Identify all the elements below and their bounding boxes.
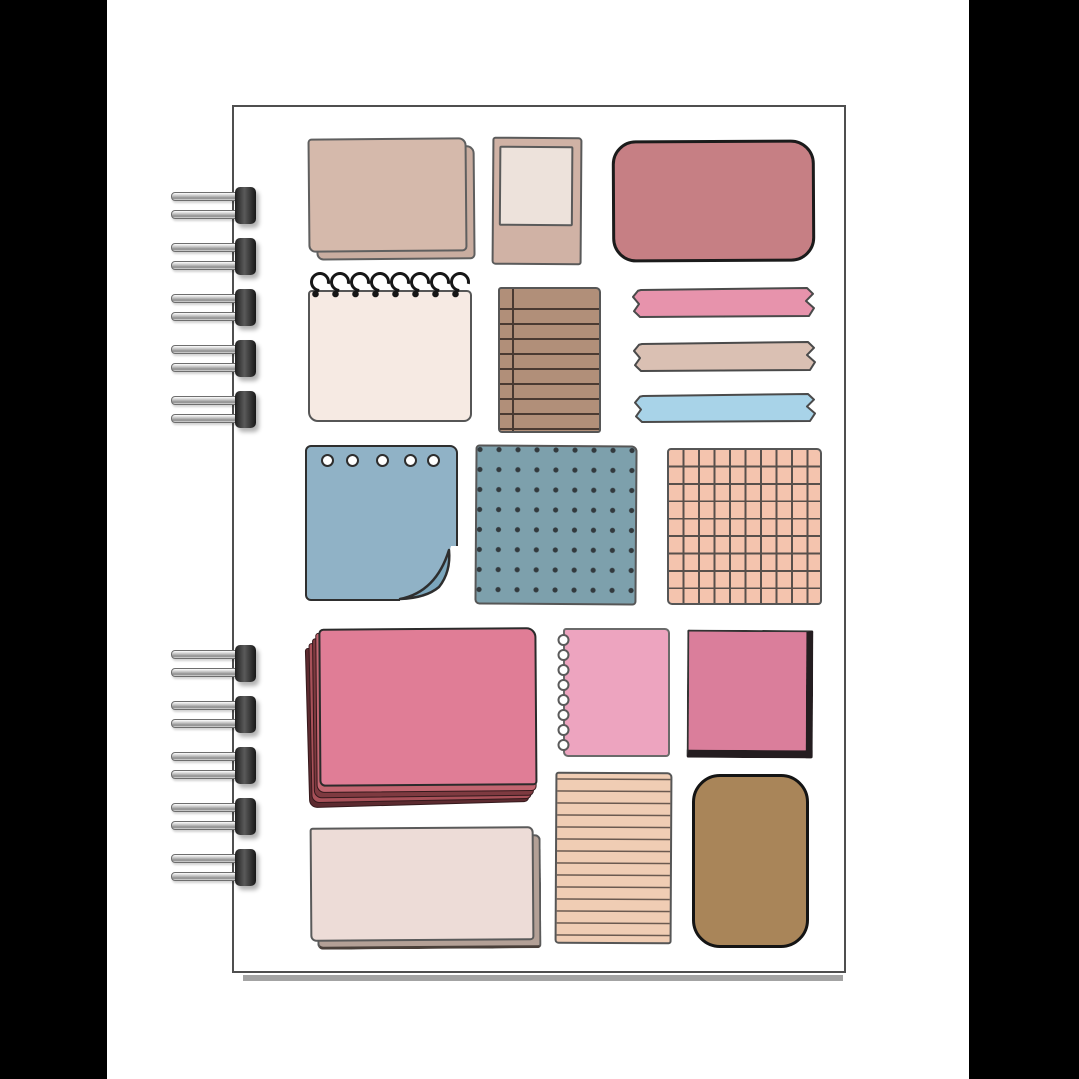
- coil-wire: [171, 668, 245, 677]
- spiral-notepad-paper: [308, 290, 472, 422]
- cover-drop-shadow: [243, 975, 843, 981]
- pink-stitched-note-paper: [687, 630, 814, 759]
- washi-tape-pink-strip: [630, 287, 817, 318]
- peach-grid-note-paper: [667, 448, 822, 605]
- binding-coil: [171, 849, 259, 886]
- binding-coil: [171, 187, 259, 224]
- cream-wide-note: [310, 826, 535, 942]
- brown-rounded-card-face: [692, 774, 809, 948]
- left-black-bar: [0, 0, 107, 1079]
- coil-wire: [171, 650, 245, 659]
- tan-stacked-note: [308, 137, 468, 252]
- binding-coil: [171, 391, 259, 428]
- binding-coil: [171, 289, 259, 326]
- blue-punched-note-punch-hole: [346, 454, 359, 467]
- washi-tape-blue-strip: [632, 393, 818, 423]
- coil-wire: [171, 312, 245, 321]
- brown-lined-note-paper: [498, 287, 601, 433]
- peach-lined-note-paper: [555, 772, 673, 945]
- peach-grid-note: [667, 448, 822, 605]
- pink-paper-stack: [306, 627, 539, 810]
- coil-cap: [235, 187, 256, 224]
- pink-torn-note-torn-rings: [553, 628, 575, 757]
- coil-wire: [171, 701, 245, 710]
- binding-coil: [171, 238, 259, 275]
- blue-dotted-note-paper: [474, 444, 637, 605]
- coil-cap: [235, 289, 256, 326]
- polaroid-frame: [492, 137, 583, 266]
- coil-cap: [235, 849, 256, 886]
- coil-wire: [171, 396, 245, 405]
- coil-wire: [171, 363, 245, 372]
- coil-cap: [235, 238, 256, 275]
- blue-punched-note-punch-hole: [404, 454, 417, 467]
- coil-wire: [171, 803, 245, 812]
- binding-coil: [171, 340, 259, 377]
- blue-dotted-note: [474, 444, 637, 605]
- rose-rounded-card: [612, 139, 816, 262]
- coil-wire: [171, 719, 245, 728]
- coil-cap: [235, 340, 256, 377]
- coil-cap: [235, 696, 256, 733]
- tan-stacked-note-front-sheet: [308, 137, 468, 252]
- washi-tape-beige-strip: [631, 341, 818, 372]
- right-black-bar: [969, 0, 1079, 1079]
- coil-wire: [171, 414, 245, 423]
- pink-torn-note: [553, 628, 670, 757]
- coil-wire: [171, 854, 245, 863]
- coil-wire: [171, 821, 245, 830]
- pink-paper-stack-top-sheet: [318, 627, 537, 787]
- coil-cap: [235, 747, 256, 784]
- coil-cap: [235, 798, 256, 835]
- coil-wire: [171, 872, 245, 881]
- coil-wire: [171, 243, 245, 252]
- polaroid-frame-photo: [499, 146, 574, 227]
- binding-coil: [171, 747, 259, 784]
- coil-cap: [235, 391, 256, 428]
- peach-lined-note: [555, 772, 673, 945]
- blue-punched-note-punch-hole: [321, 454, 334, 467]
- rose-rounded-card-face: [612, 139, 816, 262]
- pink-stitched-note: [687, 630, 814, 759]
- blue-punched-note-curled-corner: [396, 542, 460, 603]
- notebook-product-image: [0, 0, 1079, 1079]
- spiral-notepad: [306, 270, 474, 422]
- coil-cap: [235, 645, 256, 682]
- washi-tape-beige: [631, 341, 818, 372]
- washi-tape-pink: [630, 287, 817, 318]
- binding-coil: [171, 645, 259, 682]
- spiral-notepad-wire-loops: [310, 270, 470, 304]
- coil-wire: [171, 345, 245, 354]
- coil-wire: [171, 210, 245, 219]
- washi-tape-blue: [632, 393, 818, 423]
- cream-wide-note-front-sheet: [310, 826, 535, 942]
- coil-wire: [171, 752, 245, 761]
- coil-wire: [171, 192, 245, 201]
- blue-punched-note-punch-hole: [427, 454, 440, 467]
- coil-wire: [171, 261, 245, 270]
- brown-lined-note: [498, 287, 601, 433]
- brown-rounded-card: [692, 774, 809, 948]
- coil-wire: [171, 294, 245, 303]
- blue-punched-note-punch-hole: [376, 454, 389, 467]
- coil-wire: [171, 770, 245, 779]
- binding-coil: [171, 798, 259, 835]
- pink-torn-note-paper: [563, 628, 670, 757]
- binding-coil: [171, 696, 259, 733]
- blue-punched-note: [305, 445, 458, 601]
